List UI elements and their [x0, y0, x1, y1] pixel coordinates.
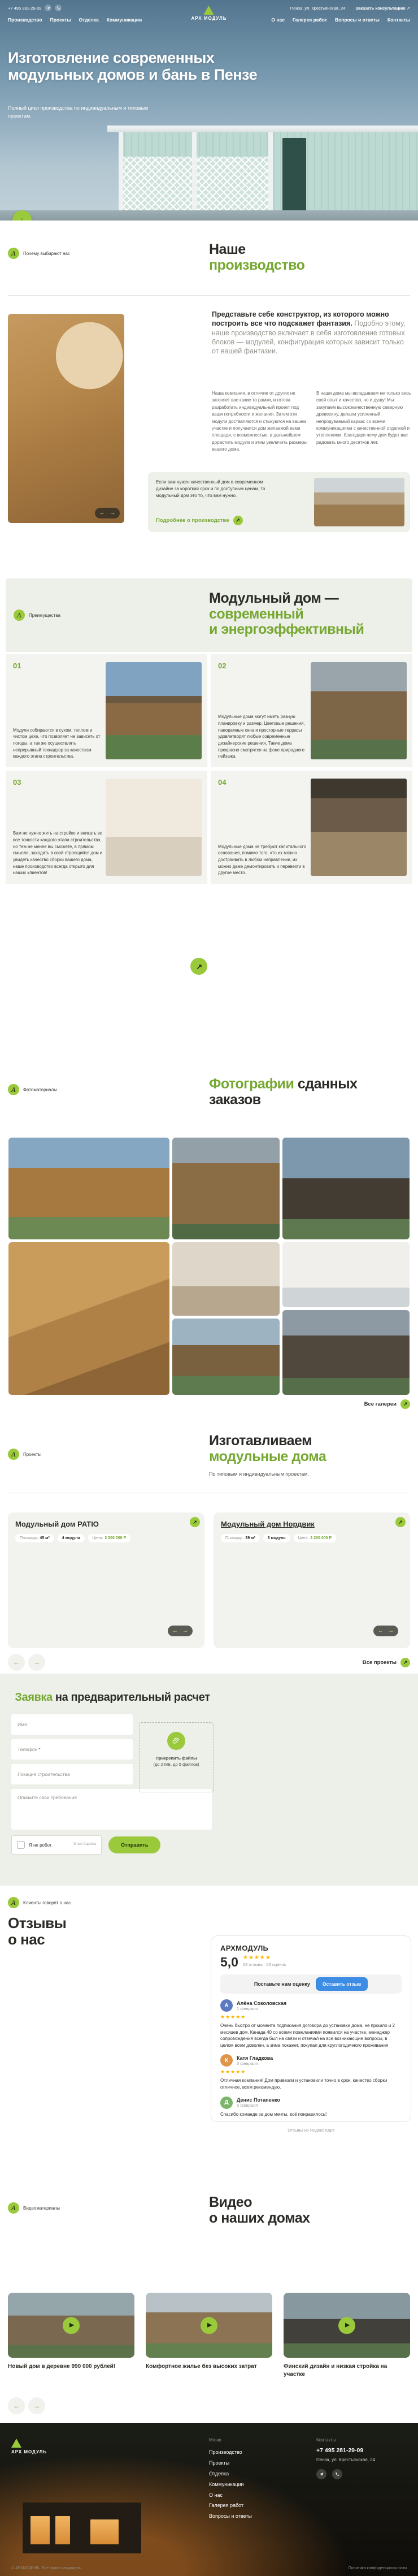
- review-text: Спасибо команде за дом мечты, всё понрав…: [220, 2111, 402, 2118]
- prev-arrow-button[interactable]: ←: [8, 2397, 25, 2414]
- video-title: Новый дом в деревне 990 000 рублей!: [8, 2363, 124, 2371]
- advantages-section: А Преимущества Модульный дом — современн…: [0, 557, 418, 1053]
- badge-label: Видеоматериалы: [23, 2206, 60, 2211]
- production-section: А Почему выбирают нас Наше производство …: [0, 221, 418, 557]
- reviewer-name: Денис Потапенко: [237, 2097, 280, 2103]
- video-title: Финский дизайн и низкая стройка на участ…: [284, 2363, 399, 2378]
- captcha-brand: Smart Captcha: [73, 1843, 96, 1847]
- company-name: АРХМОДУЛЬ: [220, 1944, 402, 1952]
- video-card[interactable]: ▶ Новый дом в деревне 990 000 рублей!: [8, 2293, 134, 2371]
- review-item: А Алёна Соколовская 1 февраля ★★★★★ Очен…: [220, 1999, 402, 2048]
- price-chip: Цена:2 500 000 Р: [88, 1534, 131, 1542]
- nav-item-production[interactable]: Производство: [8, 17, 42, 23]
- avatar: А: [220, 1999, 233, 2012]
- whatsapp-icon[interactable]: [332, 2469, 342, 2479]
- render-photo[interactable]: [221, 1562, 310, 1641]
- whatsapp-icon[interactable]: [55, 5, 62, 11]
- video-thumbnail[interactable]: ▶: [8, 2293, 134, 2358]
- rate-prompt: Поставьте нам оценку: [254, 1981, 310, 1987]
- submit-button[interactable]: Отправить: [108, 1836, 160, 1853]
- nav-item-faq[interactable]: Вопросы и ответы: [335, 17, 380, 23]
- main-nav: Производство Проекты Отделка Коммуникаци…: [8, 17, 410, 23]
- section-title: Модульный дом — современный и энергоэффе…: [209, 591, 364, 638]
- review-item: К Катя Гладкова 3 февраля ★★★★★ Отличная…: [220, 2054, 402, 2090]
- advantage-card: 02 Модульные дома могут иметь разную пла…: [211, 654, 412, 767]
- footer-link-finishing[interactable]: Отделка: [209, 2469, 252, 2479]
- prev-arrow-button[interactable]: ←: [8, 1654, 25, 1671]
- footer-phone[interactable]: +7 495 281-29-09: [316, 2447, 375, 2454]
- leave-review-button[interactable]: Оставить отзыв: [316, 1977, 368, 1991]
- production-col2: В наши дома мы вкладываем не только весь…: [316, 390, 413, 446]
- rating-meta: 53 отзыва · 55 оценок: [243, 1962, 286, 1967]
- arrow-up-right-icon[interactable]: ↗: [190, 1517, 200, 1527]
- phone-field[interactable]: Телефон*: [11, 1739, 133, 1760]
- logo-a-icon: А: [8, 2202, 19, 2214]
- footer-menu: Меню Производство Проекты Отделка Коммун…: [209, 2437, 252, 2522]
- project-renders: ←→: [221, 1562, 403, 1641]
- location-field[interactable]: Локация строительства: [11, 1764, 133, 1784]
- gallery-photo[interactable]: [282, 1242, 410, 1307]
- reviewer-name: Алёна Соколовская: [237, 2000, 286, 2006]
- section-title: Изготавливаем модульные дома: [209, 1433, 326, 1464]
- prev-arrow-icon[interactable]: ←: [99, 510, 105, 516]
- badge-label: Почему выбирают нас: [23, 251, 70, 256]
- production-col1: Наша компания, в отличие от других не за…: [212, 390, 309, 453]
- section-subtitle: По типовым и индивидуальным проектам.: [209, 1471, 309, 1477]
- gallery-photo[interactable]: [8, 1242, 169, 1395]
- cta-heading: Закажите ↗ модульный дом своей мечты: [8, 956, 410, 996]
- arrow-up-right-icon: ↗: [407, 6, 410, 11]
- project-title[interactable]: Модульный дом Нордвик: [221, 1520, 403, 1528]
- interior-photo: [106, 779, 202, 876]
- badge-label: Проекты: [23, 1452, 41, 1457]
- interior-photo: [311, 779, 407, 876]
- section-title: Отзывы о нас: [8, 1915, 66, 1947]
- projects-section: А Проекты Изготавливаем модульные дома П…: [0, 1414, 418, 1674]
- cta-frame: Закажите ↗ модульный дом своей мечты: [8, 933, 410, 1019]
- review-item: Д Денис Потапенко 5 февраля Спасибо кома…: [220, 2097, 402, 2118]
- gallery-photo[interactable]: [172, 1319, 280, 1395]
- play-button[interactable]: ▶: [338, 2317, 355, 2334]
- play-button[interactable]: ▶: [201, 2317, 217, 2334]
- link-label: Подробнее о производстве: [156, 517, 229, 524]
- review-date: 5 февраля: [237, 2103, 280, 2108]
- page-title: Изготовление современных модульных домов…: [8, 50, 302, 83]
- section-badge: А Видеоматериалы: [8, 2202, 60, 2214]
- section-badge: А Клиенты говорят о нас: [8, 1897, 71, 1908]
- hero-subtitle: Полный цикл производства по индивидуальн…: [8, 105, 155, 120]
- gallery-photo[interactable]: [282, 1310, 410, 1395]
- gallery-photo[interactable]: [172, 1242, 280, 1316]
- next-arrow-icon[interactable]: →: [182, 1628, 188, 1634]
- project-card-patio[interactable]: Модульный дом PATIO ↗ Площадь:45 м² 4 мо…: [8, 1512, 204, 1648]
- render-photo[interactable]: [15, 1562, 104, 1641]
- telegram-icon[interactable]: [45, 5, 51, 11]
- video-card[interactable]: ▶ Финский дизайн и низкая стройка на уча…: [284, 2293, 410, 2378]
- project-renders: ←→: [15, 1562, 197, 1641]
- arrow-up-right-icon[interactable]: ↗: [395, 1517, 406, 1527]
- section-badge: А Преимущества: [14, 610, 60, 621]
- review-stars: ★★★★★: [220, 2069, 402, 2075]
- logo-a-icon: А: [14, 610, 25, 621]
- link-label: Все проекты: [363, 1659, 397, 1666]
- footer-link-projects[interactable]: Проекты: [209, 2458, 252, 2469]
- production-details-link[interactable]: Подробнее о производстве ↗: [156, 516, 243, 525]
- attach-note: (до 2 МБ, до 5 файлов): [153, 1762, 199, 1767]
- hero-house-photo: [96, 126, 418, 210]
- project-specs: Площадь:45 м² 4 модуля Цена:2 500 000 Р: [15, 1534, 197, 1542]
- review-text: Очень быстро от момента подписания догов…: [220, 2022, 402, 2048]
- cta-arrow-button[interactable]: ↗: [190, 958, 207, 975]
- card-text: Модульные дома могут иметь разную планир…: [218, 714, 308, 760]
- avatar: К: [220, 2054, 233, 2067]
- footer-contacts: Контакты +7 495 281-29-09 Пенза, ул. Кре…: [316, 2437, 375, 2479]
- review-date: 1 февраля: [237, 2006, 286, 2011]
- video-thumbnail[interactable]: ▶: [284, 2293, 410, 2358]
- attach-files-dropzone[interactable]: Прикрепить файлы(до 2 МБ, до 5 файлов): [139, 1722, 214, 1792]
- prev-arrow-icon[interactable]: ←: [378, 1628, 384, 1634]
- hero-section: +7 495 281-29-09 Пенза, ул. Крестьянская…: [0, 0, 418, 221]
- gallery-photo[interactable]: [282, 1138, 410, 1239]
- review-stars: ★★★★★: [220, 2014, 402, 2020]
- telegram-icon[interactable]: [316, 2469, 326, 2479]
- card-text: Модульные дома не требуют капитального о…: [218, 844, 308, 876]
- badge-label: Фотоматериалы: [23, 1087, 57, 1092]
- advantage-card: 01 Модули собираются в сухом, теплом и ч…: [6, 654, 207, 767]
- section-badge: А Фотоматериалы: [8, 1084, 57, 1095]
- prev-arrow-icon[interactable]: ←: [172, 1628, 178, 1634]
- contacts-title: Контакты: [316, 2437, 375, 2443]
- arrow-up-right-icon: ↗: [400, 1399, 410, 1409]
- logo-a-icon: А: [8, 1084, 19, 1095]
- footer-link-production[interactable]: Производство: [209, 2447, 252, 2458]
- next-arrow-icon[interactable]: →: [388, 1628, 394, 1634]
- nav-item-finishing[interactable]: Отделка: [79, 17, 99, 23]
- production-lead: Представьте себе конструктор, из которог…: [212, 310, 411, 356]
- footer-bottom-bar: © АРХМОДУЛЬ. Все права защищены Политика…: [11, 2566, 407, 2570]
- section-title: Видео о наших домах: [209, 2195, 310, 2226]
- footer-link-gallery[interactable]: Галерея работ: [209, 2500, 252, 2511]
- footer-link-communications[interactable]: Коммуникации: [209, 2479, 252, 2490]
- footer-link-faq[interactable]: Вопросы и ответы: [209, 2511, 252, 2522]
- arrow-up-right-icon: ↗: [233, 516, 243, 525]
- carousel-controls: ←→: [168, 1626, 193, 1636]
- menu-title: Меню: [209, 2437, 252, 2443]
- badge-label: Преимущества: [29, 613, 60, 618]
- modules-chip: 4 модуля: [58, 1534, 85, 1542]
- all-galleries-link[interactable]: Все галереи ↗: [364, 1399, 410, 1409]
- logo-a-icon: А: [8, 1449, 19, 1460]
- nav-item-gallery[interactable]: Галерея работ: [293, 17, 327, 23]
- review-date: 3 февраля: [237, 2061, 273, 2066]
- phone-link[interactable]: +7 495 281-29-09: [8, 6, 41, 11]
- logo-mark-icon: [11, 2439, 21, 2448]
- review-text: Отличная компания! Дом привезли и устано…: [220, 2077, 402, 2090]
- project-card-nordvik[interactable]: Модульный дом Нордвик ↗ Площадь:39 м² 3 …: [214, 1512, 410, 1648]
- carousel-controls: ←→: [373, 1626, 398, 1636]
- advantage-card: 03 Вам не нужно жить на стройке и вникат…: [6, 771, 207, 884]
- reviews-section: А Клиенты говорят о нас Отзывы о нас АРХ…: [0, 1886, 418, 2171]
- next-arrow-button[interactable]: →: [28, 2397, 45, 2414]
- reviewer-name: Катя Гладкова: [237, 2055, 273, 2061]
- video-title: Комфортное жилье без высоких затрат: [146, 2363, 262, 2371]
- workshop-photo-small: [314, 478, 404, 526]
- videos-carousel-arrows: ← →: [8, 2397, 45, 2414]
- link-label: Все галереи: [364, 1401, 397, 1407]
- house-exterior-photo: [311, 662, 407, 759]
- render-photo[interactable]: ←→: [108, 1562, 197, 1641]
- advantages-header-panel: А Преимущества Модульный дом — современн…: [6, 578, 412, 652]
- paperclip-icon: [167, 1732, 185, 1750]
- arrow-up-right-icon: ↗: [400, 1658, 410, 1667]
- attach-label: Прикрепить файлы: [155, 1756, 197, 1761]
- badge-label: Клиенты говорят о нас: [23, 1900, 71, 1905]
- production-info-card: Если вам нужен качественный дом в соврем…: [148, 472, 410, 532]
- logo-a-icon: А: [8, 1897, 19, 1908]
- projects-carousel-arrows: ← →: [8, 1654, 45, 1671]
- nav-item-about[interactable]: О нас: [271, 17, 285, 23]
- divider: [8, 295, 410, 296]
- gallery-photo[interactable]: [172, 1138, 280, 1239]
- consult-link[interactable]: Заказать консультацию ↗: [355, 6, 410, 11]
- advantage-card: 04 Модульные дома не требуют капитальног…: [211, 771, 412, 884]
- gallery-photo[interactable]: [8, 1138, 169, 1239]
- carousel-controls: ← →: [95, 508, 120, 518]
- all-projects-link[interactable]: Все проекты ↗: [363, 1658, 410, 1667]
- videos-section: А Видеоматериалы Видео о наших домах ▶ Н…: [0, 2171, 418, 2423]
- logo-a-icon: А: [8, 248, 19, 259]
- footer-logo[interactable]: АРХ МОДУЛЬ: [11, 2439, 47, 2454]
- card-text: Если вам нужен качественный дом в соврем…: [156, 479, 275, 499]
- hero-ground: [0, 210, 418, 221]
- logo-mark-icon: [204, 6, 214, 15]
- card-text: Модули собираются в сухом, теплом и чист…: [13, 727, 103, 760]
- gallery-section: А Фотоматериалы Фотографии сданных заказ…: [0, 1053, 418, 1414]
- request-form-section: Заявка на предварительный расчет Имя Тел…: [0, 1674, 418, 1886]
- arrow-up-right-icon: ↗: [196, 962, 202, 971]
- footer-address: Пенза, ул. Крестьянская, 24: [316, 2457, 375, 2462]
- video-thumbnail[interactable]: ▶: [146, 2293, 272, 2358]
- captcha-label: Я не робот: [29, 1843, 52, 1848]
- footer-link-about[interactable]: О нас: [209, 2490, 252, 2501]
- name-field[interactable]: Имя: [11, 1714, 133, 1735]
- project-specs: Площадь:39 м² 3 модуля Цена:2 200 000 Р: [221, 1534, 403, 1542]
- area-chip: Площадь:45 м²: [15, 1534, 54, 1542]
- play-button[interactable]: ▶: [63, 2317, 80, 2334]
- message-field[interactable]: Опишите свои требования: [11, 1789, 212, 1830]
- privacy-policy-link[interactable]: Политика конфиденциальности: [349, 2566, 407, 2570]
- section-badge: А Почему выбирают нас: [8, 248, 70, 259]
- nav-item-contacts[interactable]: Контакты: [387, 17, 410, 23]
- form-panel: Заявка на предварительный расчет Имя Тел…: [0, 1674, 225, 1886]
- form-title: Заявка на предварительный расчет: [11, 1691, 214, 1704]
- card-text: Вам не нужно жить на стройке и вникать в…: [13, 830, 103, 876]
- reviews-source-note[interactable]: Отзывы из Яндекс Карт: [211, 2128, 411, 2133]
- arrow-down-icon: ↓: [20, 215, 24, 221]
- video-card[interactable]: ▶ Комфортное жилье без высоких затрат: [146, 2293, 272, 2371]
- consult-label: Заказать консультацию: [355, 6, 405, 11]
- footer-house-photo: [23, 2502, 141, 2553]
- section-title: Наше производство: [209, 242, 304, 273]
- logo-text: АРХ МОДУЛЬ: [11, 2449, 47, 2454]
- section-title: Фотографии сданных заказов: [209, 1077, 357, 1108]
- required-mark: *: [38, 1747, 40, 1752]
- rating-stars: ★★★★★: [243, 1955, 286, 1961]
- captcha-checkbox[interactable]: [17, 1841, 25, 1849]
- price-chip: Цена:2 200 000 Р: [294, 1534, 337, 1542]
- section-badge: А Проекты: [8, 1449, 41, 1460]
- next-arrow-icon[interactable]: →: [110, 510, 115, 516]
- nav-item-projects[interactable]: Проекты: [50, 17, 71, 23]
- copyright-text: © АРХМОДУЛЬ. Все права защищены: [11, 2566, 81, 2570]
- captcha-widget[interactable]: Я не робот Smart Captcha: [11, 1835, 102, 1855]
- reviews-widget: АРХМОДУЛЬ 5,0 ★★★★★ 53 отзыва · 55 оцено…: [211, 1935, 411, 2122]
- rating-value: 5,0: [220, 1955, 238, 1970]
- avatar: Д: [220, 2097, 233, 2109]
- modules-chip: 3 модуля: [263, 1534, 290, 1542]
- address-text: Пенза, ул. Крестьянская, 24: [290, 6, 346, 11]
- house-exterior-photo: [106, 662, 202, 759]
- nav-item-communications[interactable]: Коммуникации: [107, 17, 142, 23]
- footer: АРХ МОДУЛЬ Меню Производство Проекты Отд…: [0, 2423, 418, 2576]
- next-arrow-button[interactable]: →: [28, 1654, 45, 1671]
- form-side-photo: [225, 1674, 418, 1886]
- project-title[interactable]: Модульный дом PATIO: [15, 1520, 197, 1528]
- render-photo[interactable]: ←→: [313, 1562, 403, 1641]
- divider: [8, 1493, 410, 1493]
- rate-us-bar: Поставьте нам оценку Оставить отзыв: [220, 1974, 402, 1994]
- workshop-photo: ← →: [8, 314, 124, 523]
- area-chip: Площадь:39 м²: [221, 1534, 260, 1542]
